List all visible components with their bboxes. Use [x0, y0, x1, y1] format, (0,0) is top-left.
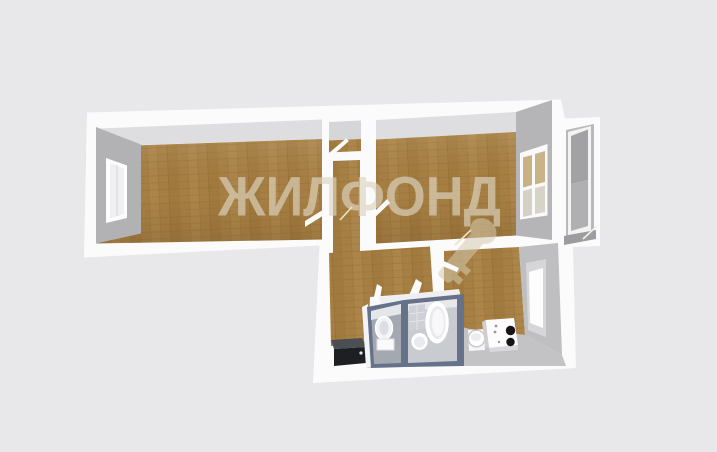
svg-text:ЖИЛФОНД: ЖИЛФОНД: [217, 165, 501, 228]
